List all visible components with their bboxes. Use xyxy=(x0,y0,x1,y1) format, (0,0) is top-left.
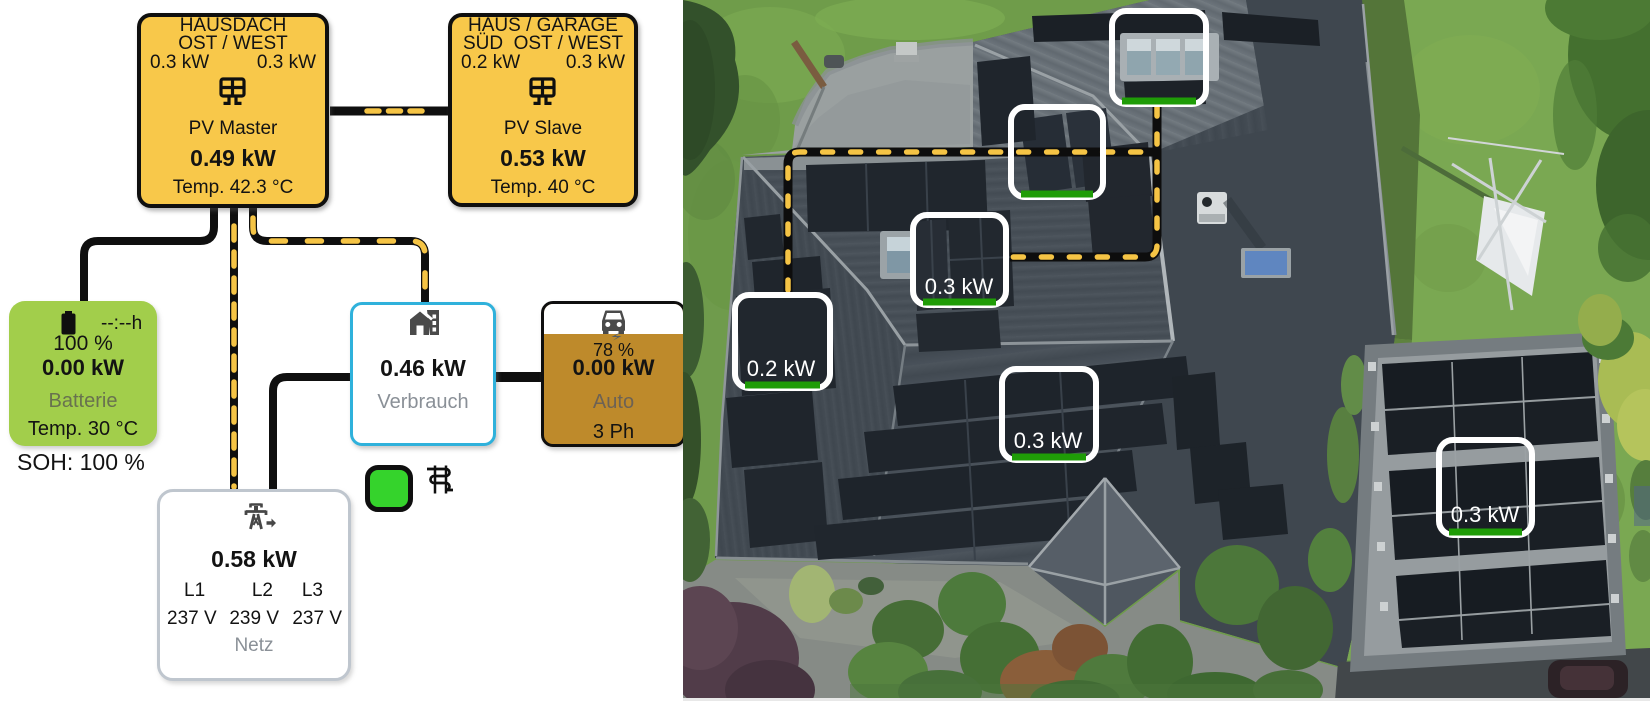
svg-text:0.3 kW: 0.3 kW xyxy=(1014,428,1083,453)
svg-text:0.2 kW: 0.2 kW xyxy=(747,356,816,381)
svg-text:0.3 kW: 0.3 kW xyxy=(1451,502,1520,527)
svg-text:0.3 kW: 0.3 kW xyxy=(925,274,994,299)
